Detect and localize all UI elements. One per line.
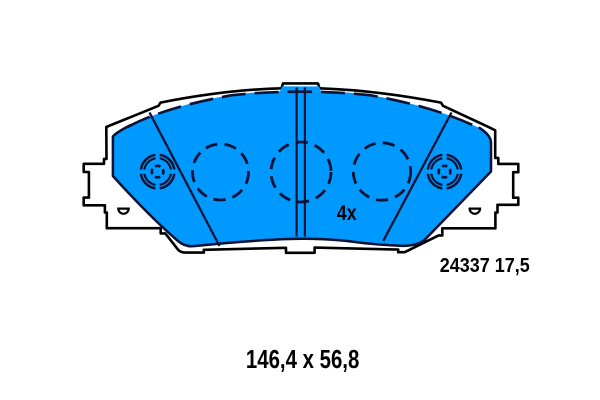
svg-text:4x: 4x <box>337 201 357 225</box>
svg-text:146,4 x 56,8: 146,4 x 56,8 <box>246 346 359 374</box>
svg-text:24337 17,5: 24337 17,5 <box>440 254 530 277</box>
